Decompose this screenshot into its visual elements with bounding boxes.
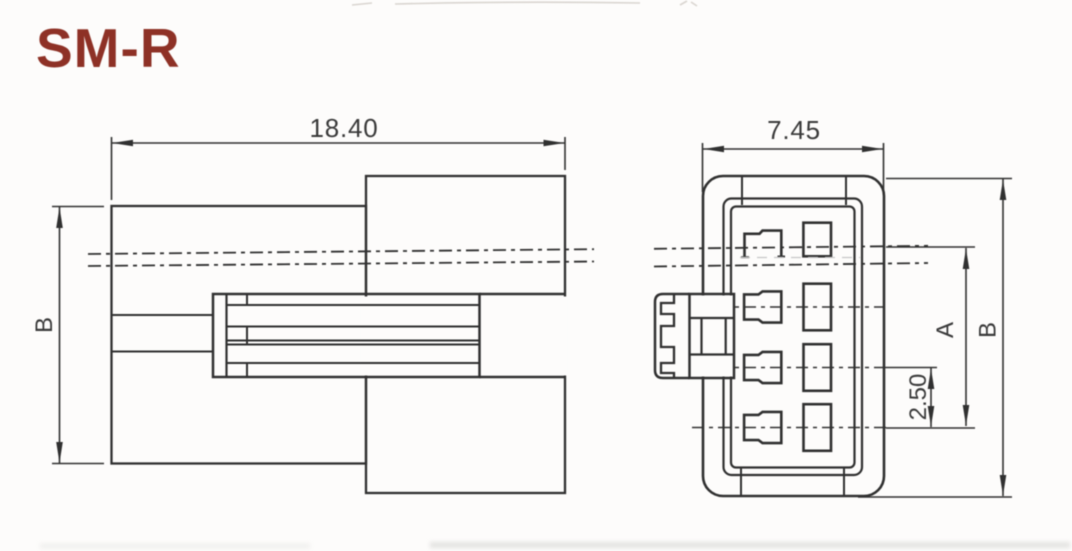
- svg-text:B: B: [31, 317, 58, 333]
- svg-text:B: B: [975, 322, 1002, 338]
- svg-text:7.45: 7.45: [767, 115, 821, 145]
- svg-text:18.40: 18.40: [309, 113, 378, 143]
- svg-text:SM-R: SM-R: [36, 17, 181, 79]
- svg-text:2.50: 2.50: [905, 374, 932, 421]
- svg-text:A: A: [932, 322, 959, 338]
